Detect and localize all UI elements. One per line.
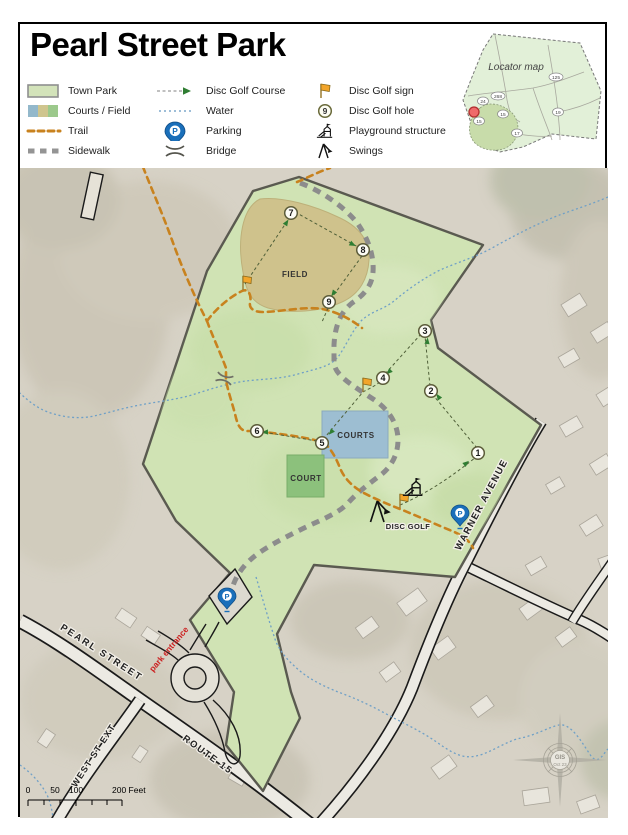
hole-marker: 8 [357, 244, 370, 257]
legend-item-playground: Playground structure [313, 121, 446, 141]
court-label: COURT [290, 474, 321, 483]
legend-label: Courts / Field [68, 105, 130, 117]
disc-golf-course-line-sample [150, 83, 200, 99]
legend-label: Swings [349, 145, 383, 157]
parking-pin-icon: P [150, 121, 200, 141]
house [522, 787, 550, 805]
legend-label: Disc Golf sign [349, 85, 414, 97]
legend-label: Water [206, 105, 234, 117]
legend-item-water: Water [150, 101, 285, 121]
courts-field-swatch [26, 103, 62, 119]
legend-label: Trail [68, 125, 88, 137]
disc-golf-sign-icon [313, 82, 337, 100]
hole-marker: 7 [285, 207, 298, 220]
svg-text:9: 9 [323, 106, 328, 116]
page-title: Pearl Street Park [30, 26, 286, 64]
map-page: Pearl Street Park Town Park Courts / Fie… [0, 0, 628, 835]
route-shield: 15 [500, 112, 506, 118]
legend-label: Sidewalk [68, 145, 110, 157]
legend-label: Playground structure [349, 125, 446, 137]
route-shield: 17 [514, 131, 520, 137]
legend-label: Disc Golf Course [206, 85, 285, 97]
svg-text:2: 2 [428, 386, 433, 396]
legend-item-disc-golf-course: Disc Golf Course [150, 81, 285, 101]
legend-label: Disc Golf hole [349, 105, 414, 117]
legend-item-courts-field: Courts / Field [26, 101, 130, 121]
legend-item-trail: Trail [26, 121, 130, 141]
legend-item-sidewalk: Sidewalk [26, 141, 130, 161]
sidewalk-line-sample [26, 143, 62, 159]
svg-text:9: 9 [326, 297, 331, 307]
field-label: FIELD [282, 270, 308, 279]
scale-label-50: 50 [50, 785, 60, 795]
svg-text:7: 7 [288, 208, 293, 218]
scale-label-100: 100 [69, 785, 83, 795]
svg-text:3: 3 [422, 326, 427, 336]
hole-marker: 9 [323, 296, 336, 309]
hole-marker: 4 [377, 372, 390, 385]
route-shield: 125 [552, 75, 560, 81]
svg-text:P: P [172, 126, 178, 136]
svg-text:6: 6 [254, 426, 259, 436]
playground-icon [313, 122, 337, 140]
hole-marker: 6 [251, 425, 264, 438]
park-map: P [20, 168, 608, 818]
scale-label-0: 0 [26, 785, 31, 795]
route-shield: 15 [476, 119, 482, 125]
hole-marker: 3 [419, 325, 432, 338]
compass-gis-label: GIS [555, 755, 565, 761]
hole-marker: 1 [472, 447, 485, 460]
courts-label: COURTS [337, 431, 374, 440]
route-shield: 24 [480, 99, 486, 105]
legend-column-2: Disc Golf Course Water P Parking [150, 81, 285, 161]
legend-item-disc-golf-sign: Disc Golf sign [313, 81, 446, 101]
locator-map: Locator map 24 268 15 15 125 19 17 [455, 18, 610, 166]
legend-column-3: Disc Golf sign 9 Disc Golf hole [313, 81, 446, 161]
legend-item-bridge: Bridge [150, 141, 285, 161]
legend-label: Bridge [206, 145, 236, 157]
route-shield: 19 [555, 110, 561, 116]
legend-item-parking: P Parking [150, 121, 285, 141]
legend-item-disc-golf-hole: 9 Disc Golf hole [313, 101, 446, 121]
hole-marker: 5 [316, 437, 329, 450]
svg-text:4: 4 [380, 373, 385, 383]
svg-text:8: 8 [360, 245, 365, 255]
route-shield: 268 [494, 94, 502, 100]
scale-label-200: 200 Feet [112, 785, 146, 795]
legend-item-town-park: Town Park [26, 81, 130, 101]
legend-label: Parking [206, 125, 242, 137]
town-park-swatch [26, 83, 62, 99]
water-line-sample [150, 103, 200, 119]
trail-line-sample [26, 123, 62, 139]
disc-golf-label: DISC GOLF [386, 522, 430, 531]
compass-date-label: Oct 23 [553, 762, 567, 767]
legend-item-swings: Swings [313, 141, 446, 161]
locator-title: Locator map [488, 62, 544, 73]
legend-label: Town Park [68, 85, 117, 97]
swings-icon [313, 142, 337, 160]
legend-column-1: Town Park Courts / Field Trail Sidewalk [26, 81, 130, 161]
bridge-icon [150, 143, 200, 159]
hole-marker: 2 [425, 385, 438, 398]
disc-golf-hole-icon: 9 [313, 102, 337, 120]
svg-text:5: 5 [319, 438, 324, 448]
svg-text:1: 1 [475, 448, 480, 458]
locator-location-dot [469, 107, 479, 117]
